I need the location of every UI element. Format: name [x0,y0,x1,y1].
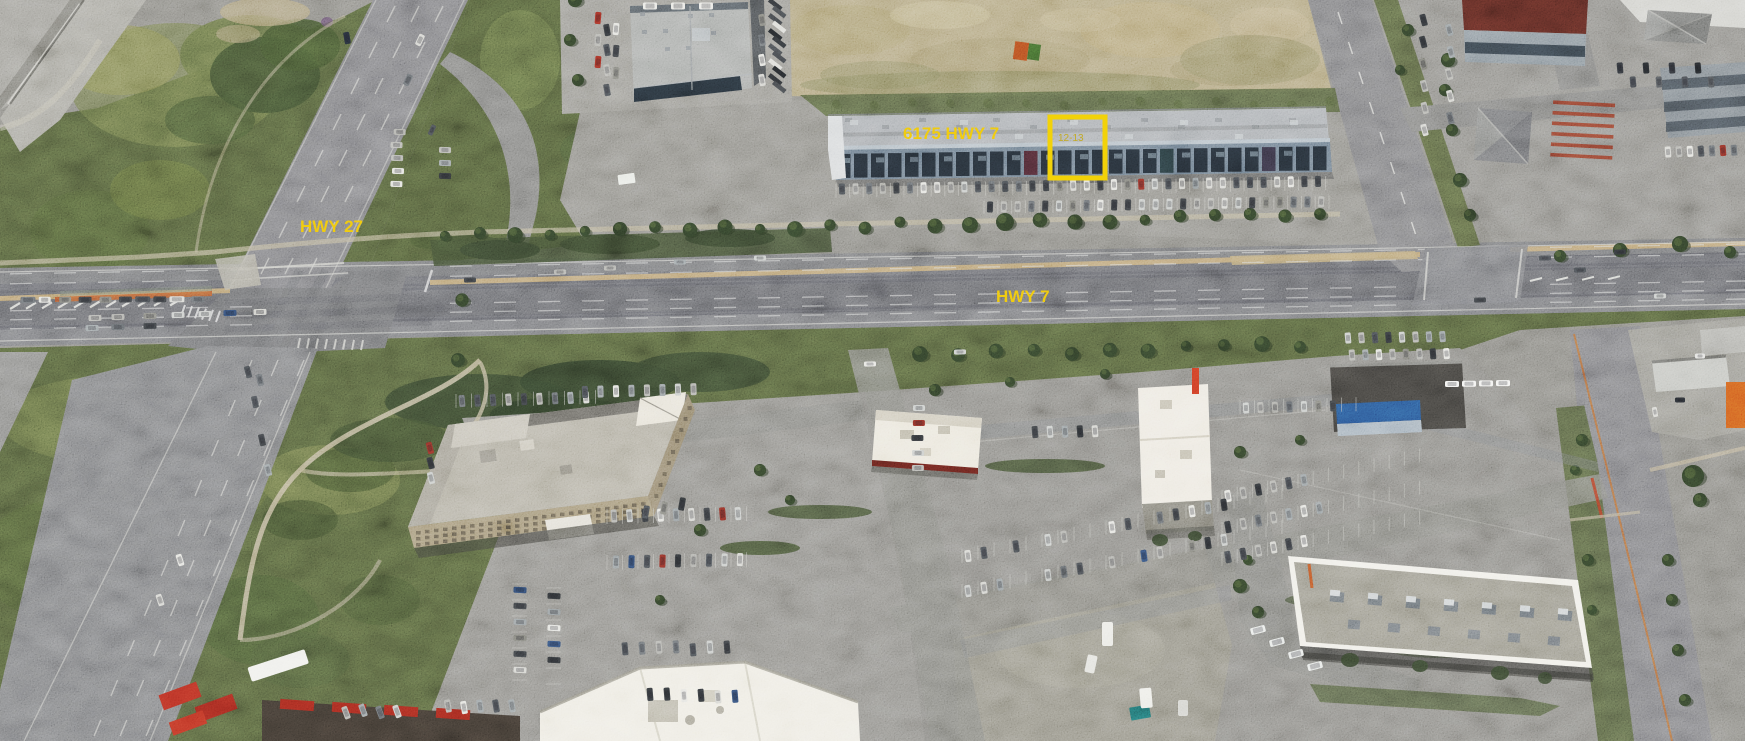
svg-text:HWY 7: HWY 7 [996,287,1050,306]
svg-text:6175 HWY 7: 6175 HWY 7 [903,124,999,143]
svg-text:HWY 27: HWY 27 [300,217,363,236]
svg-text:12-13: 12-13 [1058,133,1084,144]
